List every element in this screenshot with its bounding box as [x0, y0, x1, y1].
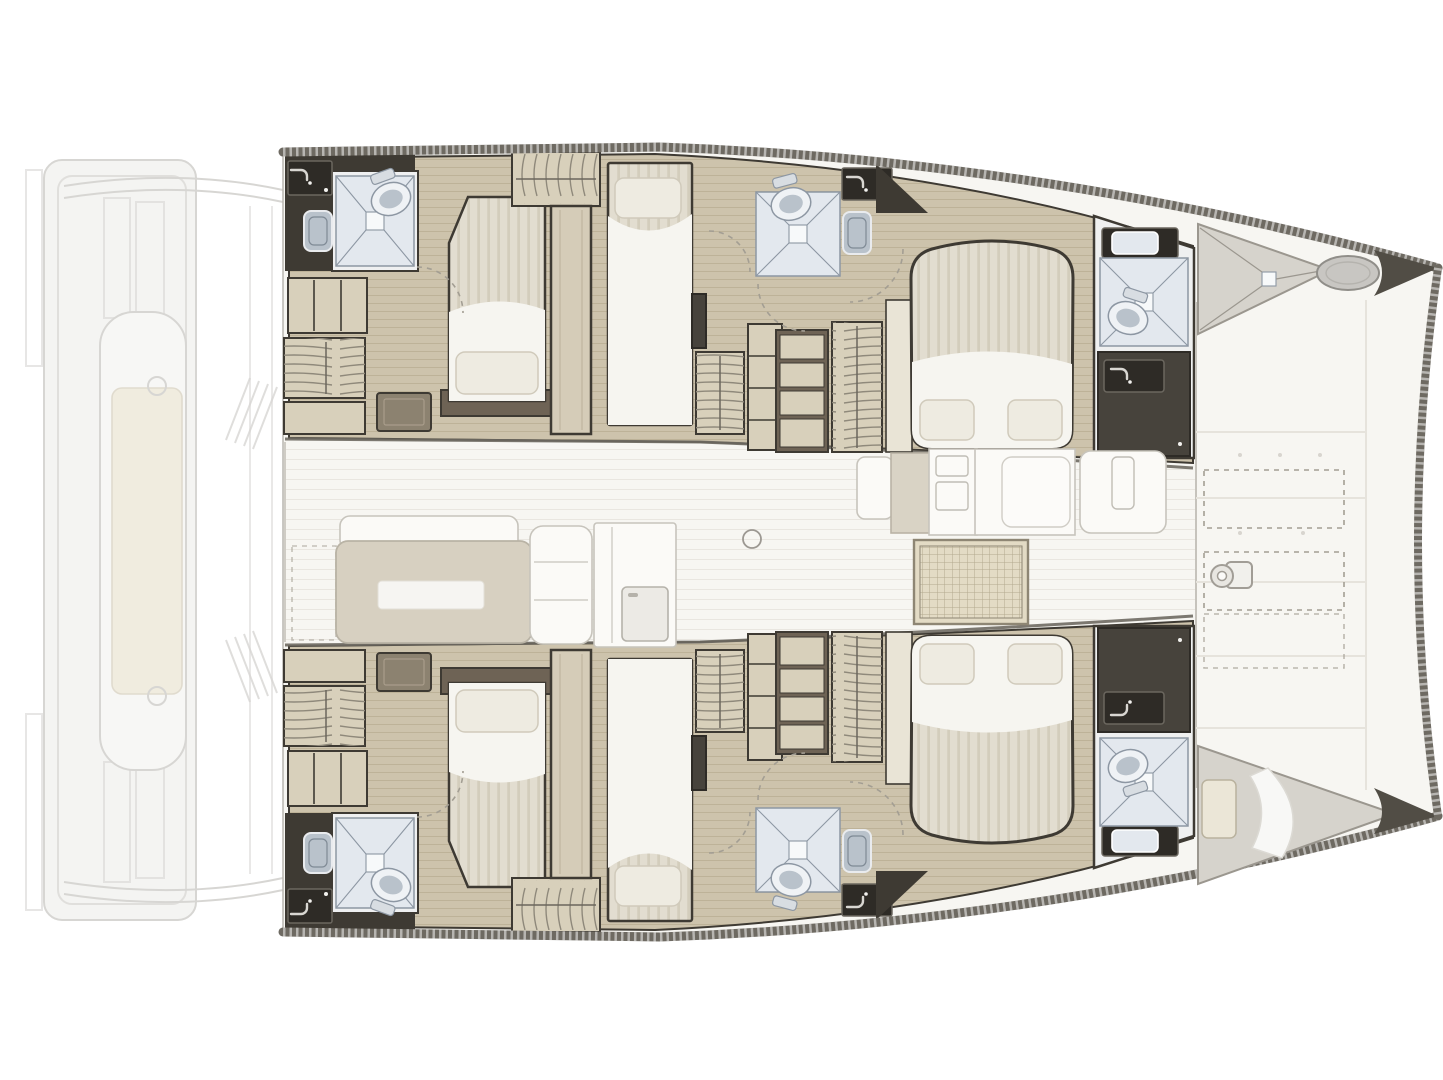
- single-bed-mid: [608, 163, 692, 425]
- hanging-rail: [696, 352, 744, 434]
- sink: [1112, 232, 1158, 254]
- starboard-davit: [26, 714, 42, 910]
- ladder-steps: [226, 378, 277, 702]
- low-shelf: [284, 402, 365, 434]
- shelf-tower: [776, 330, 828, 452]
- galley-panel: [891, 453, 931, 533]
- sofa-tray: [378, 581, 484, 609]
- bed-sheet: [608, 214, 692, 425]
- galley-table: [857, 457, 893, 519]
- wardrobe-divider: [551, 206, 591, 434]
- pillow: [920, 400, 974, 440]
- shelf-unit: [288, 278, 367, 333]
- nav-table: [1080, 451, 1166, 533]
- forward-bathroom: [1094, 216, 1194, 458]
- aft-deck-ghost: [26, 160, 283, 920]
- tender-cushion: [112, 388, 182, 694]
- pillow: [456, 352, 538, 394]
- pillow: [615, 178, 681, 218]
- galley-cabinet-fridge: [594, 523, 676, 647]
- galley-sink-unit: [929, 449, 977, 535]
- port-davit: [26, 170, 42, 366]
- hanging-locker: [832, 322, 882, 452]
- windlass: [1211, 562, 1252, 588]
- closet-hangers: [512, 152, 600, 206]
- aft-bathroom: [285, 154, 418, 271]
- lounge-chair: [530, 526, 592, 644]
- pillow: [1008, 400, 1062, 440]
- hanging-locker: [284, 338, 365, 398]
- galley-counter: [975, 449, 1075, 535]
- cabinet-small: [692, 294, 706, 348]
- floor-grate: [914, 540, 1028, 624]
- wardrobe-door: [886, 300, 912, 452]
- catamaran-floorplan: [0, 0, 1443, 1080]
- locker-dark: [1098, 352, 1190, 456]
- berth-cushion: [1202, 780, 1236, 838]
- island-double-bed: [911, 241, 1073, 448]
- double-bed-aft: [441, 197, 551, 416]
